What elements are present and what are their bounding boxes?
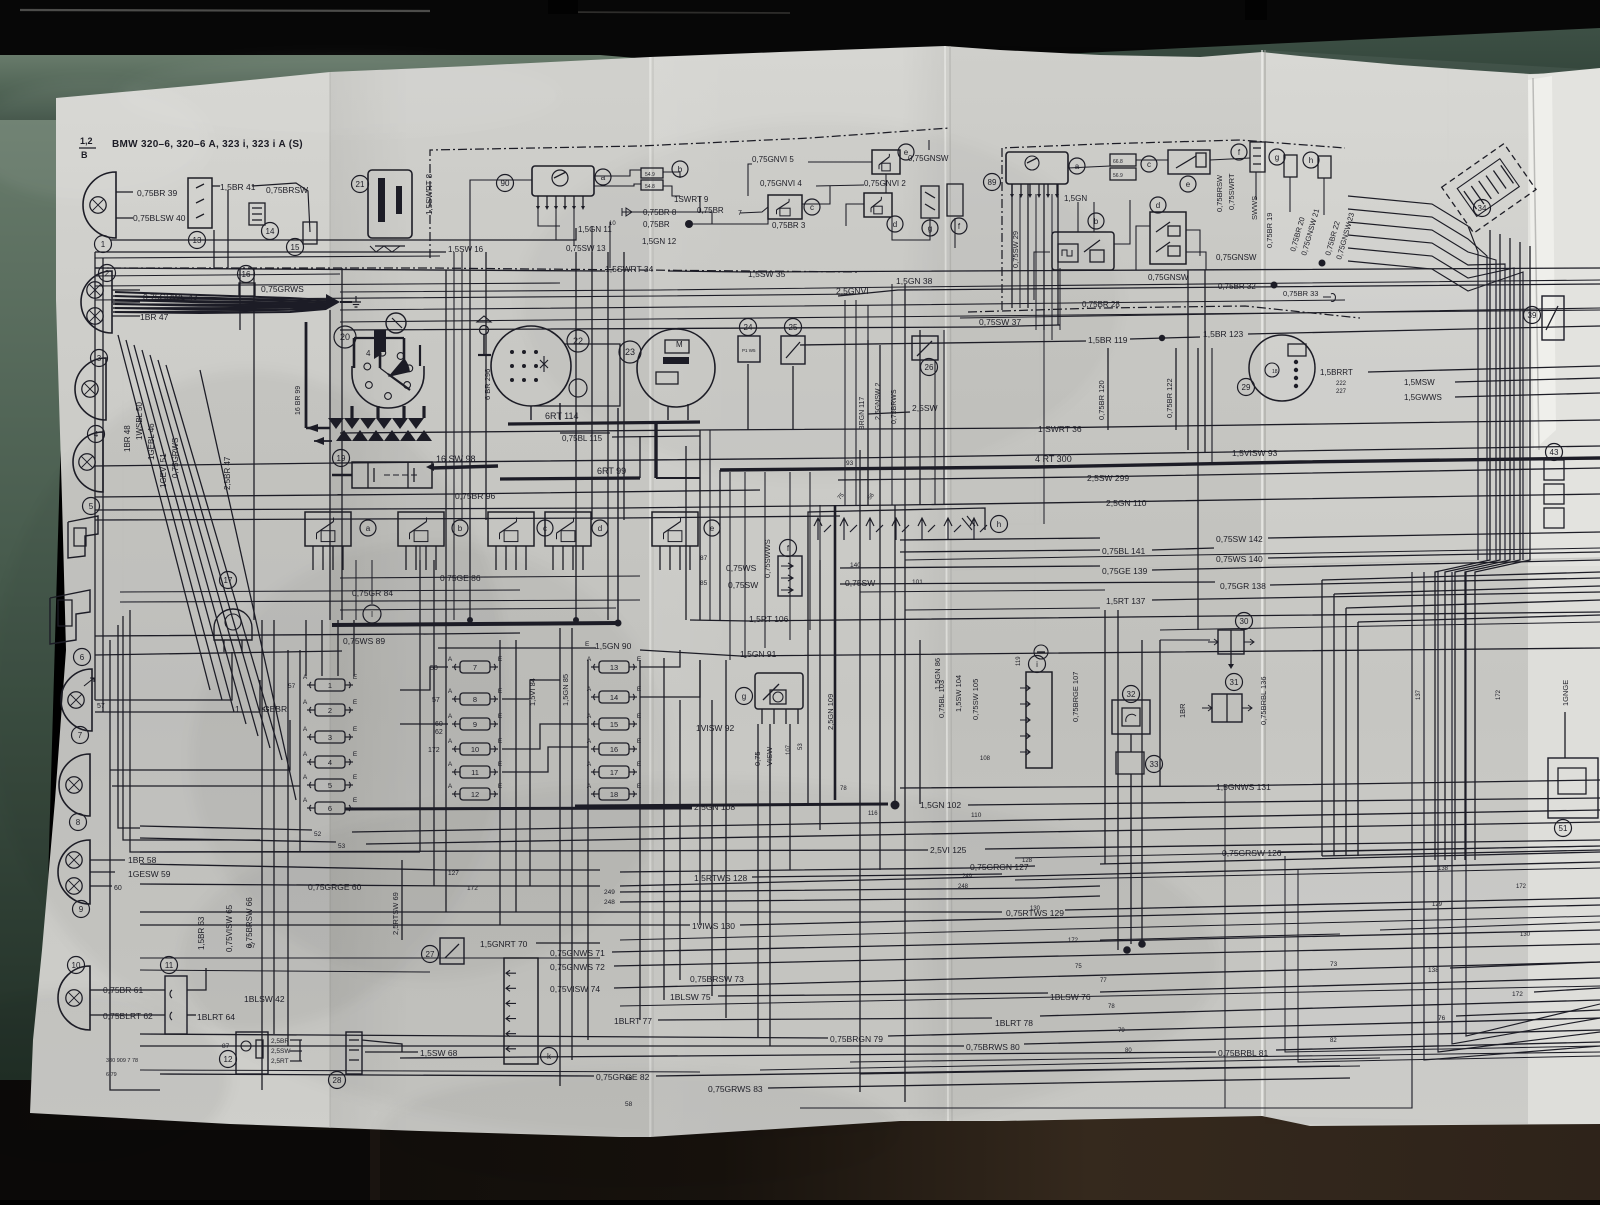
svg-text:2,5BR: 2,5BR (271, 1038, 289, 1045)
svg-text:0,75GR 138: 0,75GR 138 (1220, 581, 1266, 591)
svg-text:c: c (1147, 160, 1151, 169)
svg-text:BMW 320–6, 320–6 A, 323 i, 323: BMW 320–6, 320–6 A, 323 i, 323 i A (S) (112, 139, 303, 150)
svg-text:E: E (353, 751, 358, 758)
svg-text:BRGN 117: BRGN 117 (859, 397, 866, 430)
svg-text:0,75BL 103: 0,75BL 103 (937, 680, 946, 718)
svg-text:227: 227 (1336, 389, 1347, 395)
svg-text:9: 9 (473, 720, 477, 729)
svg-text:1,5GN: 1,5GN (1064, 194, 1087, 203)
svg-text:107: 107 (786, 744, 792, 755)
svg-text:0,75BR: 0,75BR (643, 220, 670, 229)
svg-text:58: 58 (625, 1101, 633, 1108)
svg-text:21: 21 (356, 180, 365, 189)
svg-text:0,75BRSW: 0,75BRSW (1215, 174, 1224, 212)
svg-text:57: 57 (97, 703, 105, 710)
svg-text:4: 4 (366, 349, 371, 358)
svg-text:2,5GNSW 2: 2,5GNSW 2 (875, 383, 882, 420)
svg-text:A: A (448, 761, 453, 768)
svg-text:A: A (303, 699, 308, 706)
svg-text:137: 137 (1416, 689, 1422, 700)
svg-text:0,75GRWS 83: 0,75GRWS 83 (708, 1084, 763, 1094)
svg-text:30: 30 (1240, 617, 1249, 626)
svg-text:2,5SW: 2,5SW (271, 1048, 291, 1055)
svg-text:0,75VISW 74: 0,75VISW 74 (550, 984, 600, 994)
svg-text:h: h (997, 520, 1001, 529)
svg-text:A: A (448, 656, 453, 663)
svg-text:0,75SW: 0,75SW (728, 580, 758, 590)
svg-text:g: g (742, 692, 746, 701)
svg-text:M: M (676, 340, 683, 349)
svg-text:2: 2 (105, 269, 110, 278)
svg-text:0,75BR 33: 0,75BR 33 (1283, 289, 1318, 298)
svg-text:0,75BRSW: 0,75BRSW (266, 185, 308, 195)
svg-text:6.79: 6.79 (106, 1072, 117, 1078)
svg-text:3: 3 (328, 733, 332, 742)
svg-text:1,5GN 102: 1,5GN 102 (920, 800, 961, 810)
svg-text:18: 18 (1272, 369, 1278, 375)
svg-text:101: 101 (912, 579, 923, 586)
svg-text:7: 7 (78, 731, 83, 740)
svg-text:6RT 114: 6RT 114 (545, 411, 579, 421)
svg-text:10: 10 (471, 745, 479, 754)
svg-text:0,75GRGE 60: 0,75GRGE 60 (308, 882, 362, 892)
svg-text:2,5VI 125: 2,5VI 125 (930, 845, 967, 855)
svg-text:5: 5 (328, 781, 332, 790)
svg-text:0,75WS: 0,75WS (726, 563, 757, 573)
svg-text:15: 15 (610, 720, 618, 729)
svg-text:93: 93 (846, 460, 854, 467)
svg-text:E: E (353, 797, 358, 804)
svg-text:25: 25 (789, 323, 798, 332)
svg-text:23: 23 (625, 347, 635, 357)
svg-text:1: 1 (328, 681, 332, 690)
svg-text:1BLSW 75: 1BLSW 75 (670, 992, 711, 1002)
svg-text:1,5BR 41: 1,5BR 41 (220, 182, 256, 192)
svg-text:1,5RT 137: 1,5RT 137 (1106, 596, 1146, 606)
svg-text:1,5BRRT: 1,5BRRT (1320, 368, 1353, 377)
svg-text:17: 17 (610, 768, 618, 777)
svg-text:1,2: 1,2 (80, 136, 93, 146)
svg-text:10: 10 (72, 961, 81, 970)
svg-text:1,5BR 123: 1,5BR 123 (1203, 329, 1243, 339)
svg-text:d: d (1156, 201, 1160, 210)
svg-text:62: 62 (435, 729, 443, 736)
svg-text:172: 172 (1516, 884, 1527, 890)
svg-text:h: h (1309, 156, 1313, 165)
svg-text:5: 5 (89, 502, 94, 511)
svg-text:i: i (1036, 660, 1038, 669)
svg-text:85: 85 (700, 580, 708, 587)
svg-text:0,75BRSW 73: 0,75BRSW 73 (690, 974, 744, 984)
svg-text:172: 172 (1496, 689, 1502, 700)
svg-text:1,5GN 90: 1,5GN 90 (595, 641, 632, 651)
svg-text:0,75BR: 0,75BR (697, 206, 724, 215)
svg-text:0,75BL 141: 0,75BL 141 (1102, 546, 1145, 556)
svg-text:53: 53 (798, 743, 804, 750)
svg-text:56.9: 56.9 (1113, 173, 1123, 179)
svg-text:d: d (598, 524, 602, 533)
svg-text:4: 4 (328, 758, 332, 767)
svg-text:0,75SW 13: 0,75SW 13 (566, 244, 606, 253)
svg-text:0,75SWRT: 0,75SWRT (1227, 173, 1236, 210)
svg-text:1BLRT 64: 1BLRT 64 (197, 1012, 235, 1022)
svg-text:0,75WS 89: 0,75WS 89 (343, 636, 385, 646)
svg-text:0,75BRBL 136: 0,75BRBL 136 (1259, 676, 1268, 725)
svg-text:A: A (303, 674, 308, 681)
svg-text:2,5BR 47: 2,5BR 47 (223, 456, 232, 490)
svg-text:E: E (637, 713, 642, 720)
svg-text:2,5RTSW 69: 2,5RTSW 69 (391, 892, 400, 935)
svg-text:e: e (1186, 180, 1191, 189)
svg-text:0,75GNVI 4: 0,75GNVI 4 (760, 179, 802, 188)
svg-text:d: d (893, 220, 897, 229)
svg-text:53: 53 (338, 843, 346, 850)
svg-text:87: 87 (700, 555, 708, 562)
svg-text:0,75GNSW: 0,75GNSW (908, 154, 949, 163)
svg-text:248: 248 (604, 899, 615, 906)
svg-text:0,75GNVI 5: 0,75GNVI 5 (752, 155, 794, 164)
svg-text:P1 W5: P1 W5 (742, 348, 756, 353)
svg-text:1,5GN 12: 1,5GN 12 (642, 237, 677, 246)
svg-text:1,5MSW: 1,5MSW (1404, 378, 1435, 387)
svg-text:E: E (353, 774, 358, 781)
svg-text:0,75BR 28: 0,75BR 28 (1082, 300, 1120, 309)
svg-text:55: 55 (262, 707, 270, 714)
svg-text:14: 14 (266, 227, 275, 236)
svg-text:0,75WS 140: 0,75WS 140 (1216, 554, 1263, 564)
svg-text:0,75SW 142: 0,75SW 142 (1216, 534, 1263, 544)
svg-text:52: 52 (314, 831, 322, 838)
svg-text:b: b (458, 524, 463, 533)
svg-text:34: 34 (1478, 204, 1487, 213)
svg-text:249: 249 (604, 889, 615, 896)
svg-text:1,5GN 38: 1,5GN 38 (896, 276, 933, 286)
svg-text:89: 89 (988, 178, 997, 187)
svg-text:0,75BRSW 66: 0,75BRSW 66 (245, 897, 254, 948)
svg-text:A: A (303, 774, 308, 781)
svg-text:1,5SW 104: 1,5SW 104 (954, 675, 963, 712)
svg-text:A: A (303, 797, 308, 804)
svg-text:4 RT 300: 4 RT 300 (1035, 454, 1072, 464)
svg-text:87: 87 (222, 1043, 230, 1050)
svg-text:1,5GWWS: 1,5GWWS (1404, 393, 1442, 402)
svg-text:19: 19 (337, 454, 346, 463)
svg-text:77: 77 (1100, 978, 1107, 984)
svg-text:43: 43 (1550, 448, 1559, 457)
svg-text:1BLSW 42: 1BLSW 42 (244, 994, 285, 1004)
svg-text:26: 26 (925, 363, 934, 372)
svg-text:7: 7 (738, 210, 742, 217)
svg-text:0,75GNSW: 0,75GNSW (1148, 273, 1189, 282)
svg-text:l: l (371, 610, 373, 619)
svg-text:6 BR 296: 6 BR 296 (483, 369, 492, 400)
svg-text:51: 51 (1559, 824, 1568, 833)
svg-text:1VIWS 130: 1VIWS 130 (692, 921, 735, 931)
svg-text:110: 110 (971, 812, 982, 819)
svg-text:6: 6 (80, 653, 85, 662)
svg-text:172: 172 (1512, 991, 1523, 998)
svg-text:0,75BR 122: 0,75BR 122 (1165, 378, 1174, 418)
svg-text:6: 6 (328, 804, 332, 813)
svg-text:18: 18 (610, 790, 618, 799)
svg-text:1,5GN 85: 1,5GN 85 (561, 674, 570, 706)
svg-text:0,75SW 105: 0,75SW 105 (971, 679, 980, 720)
svg-text:1,5SW 68: 1,5SW 68 (420, 1048, 458, 1058)
svg-text:22: 22 (573, 336, 583, 346)
svg-text:1,5RTWS 128: 1,5RTWS 128 (694, 873, 748, 883)
svg-text:7: 7 (473, 663, 477, 672)
svg-text:1BR 48: 1BR 48 (123, 425, 132, 452)
svg-text:79: 79 (1118, 1028, 1125, 1034)
svg-text:E: E (637, 686, 642, 693)
svg-text:222: 222 (1336, 381, 1347, 387)
svg-text:2,5RT: 2,5RT (271, 1058, 289, 1065)
svg-text:15: 15 (291, 243, 300, 252)
svg-text:76: 76 (1438, 1015, 1446, 1022)
svg-text:0,75GE 139: 0,75GE 139 (1102, 566, 1148, 576)
svg-text:0,75BLSW 40: 0,75BLSW 40 (133, 213, 186, 223)
svg-text:68: 68 (625, 1075, 633, 1082)
svg-text:6RT 99: 6RT 99 (597, 466, 626, 476)
svg-text:E: E (637, 738, 642, 745)
svg-text:2: 2 (328, 706, 332, 715)
svg-text:8: 8 (76, 818, 81, 827)
svg-text:g: g (1275, 153, 1279, 162)
svg-text:0,75BR 96: 0,75BR 96 (455, 491, 495, 501)
svg-text:E: E (637, 783, 642, 790)
svg-text:a: a (366, 524, 371, 533)
svg-text:128: 128 (1022, 858, 1033, 864)
svg-text:1BLRT 78: 1BLRT 78 (995, 1018, 1033, 1028)
svg-text:1GNGE: 1GNGE (1561, 680, 1570, 706)
svg-text:0,75BR 120: 0,75BR 120 (1097, 380, 1106, 420)
svg-text:3: 3 (97, 354, 102, 363)
svg-text:SWWS: SWWS (1250, 196, 1259, 220)
svg-text:127: 127 (448, 870, 459, 877)
svg-text:0,75GNWS 71: 0,75GNWS 71 (550, 948, 605, 958)
svg-text:11: 11 (165, 961, 174, 970)
svg-text:172: 172 (1068, 938, 1079, 944)
svg-text:1,5SW 35: 1,5SW 35 (748, 269, 786, 279)
svg-text:9: 9 (79, 905, 84, 914)
svg-text:a: a (601, 173, 606, 182)
svg-text:0,75BRWS 80: 0,75BRWS 80 (966, 1042, 1020, 1052)
svg-text:138: 138 (1438, 866, 1449, 872)
svg-text:1GEBL 46: 1GEBL 46 (147, 423, 156, 460)
svg-text:39: 39 (1528, 311, 1537, 320)
svg-text:1,5GN 11: 1,5GN 11 (578, 225, 612, 234)
svg-text:129: 129 (1432, 902, 1443, 908)
svg-text:0,75GNVI 2: 0,75GNVI 2 (864, 179, 906, 188)
svg-text:1,5RT 106: 1,5RT 106 (749, 614, 789, 624)
svg-text:0,75BR 39: 0,75BR 39 (137, 188, 177, 198)
svg-text:2,5GN 109: 2,5GN 109 (826, 694, 835, 730)
svg-text:E: E (585, 641, 590, 648)
svg-text:1,5SWRT 8: 1,5SWRT 8 (425, 173, 434, 215)
svg-text:E: E (637, 656, 642, 663)
svg-text:12: 12 (471, 790, 479, 799)
svg-text:1,5VISW 93: 1,5VISW 93 (1232, 448, 1278, 458)
svg-text:8: 8 (473, 695, 477, 704)
svg-text:1 SWRT 36: 1 SWRT 36 (1038, 424, 1082, 434)
svg-text:17: 17 (224, 576, 233, 585)
svg-text:1,5GNWS 131: 1,5GNWS 131 (1216, 782, 1271, 792)
svg-text:1GESW 59: 1GESW 59 (128, 869, 171, 879)
svg-text:0,75GRWS: 0,75GRWS (261, 284, 304, 294)
svg-text:78: 78 (1108, 1004, 1115, 1010)
svg-text:A: A (303, 751, 308, 758)
svg-text:29: 29 (1242, 383, 1251, 392)
svg-text:16 BR 99: 16 BR 99 (295, 386, 302, 415)
svg-text:248: 248 (958, 884, 969, 890)
svg-text:0,75GRGE 82: 0,75GRGE 82 (596, 1072, 650, 1082)
svg-text:14: 14 (610, 693, 618, 702)
svg-text:B: B (81, 150, 88, 160)
svg-text:57: 57 (288, 683, 296, 690)
svg-text:1,5SWRT 34: 1,5SWRT 34 (605, 264, 654, 274)
svg-text:80: 80 (1125, 1048, 1132, 1054)
svg-text:2,5SW 299: 2,5SW 299 (1087, 473, 1129, 483)
svg-text:1: 1 (101, 240, 106, 249)
svg-text:130: 130 (1520, 932, 1531, 938)
svg-text:0,75SWWS: 0,75SWWS (763, 539, 772, 578)
svg-text:1BLRT 77: 1BLRT 77 (614, 1016, 652, 1026)
svg-text:a: a (1075, 162, 1080, 171)
svg-text:66.8: 66.8 (1113, 159, 1123, 165)
svg-text:0,75GR 84: 0,75GR 84 (352, 588, 393, 598)
svg-text:119: 119 (1016, 656, 1022, 666)
svg-text:54.8: 54.8 (645, 184, 655, 190)
svg-text:0,75BR 19: 0,75BR 19 (1265, 213, 1274, 248)
svg-text:A: A (303, 726, 308, 733)
svg-text:16: 16 (610, 745, 618, 754)
svg-text:1,5GNRT 70: 1,5GNRT 70 (480, 939, 528, 949)
svg-text:31: 31 (1230, 678, 1239, 687)
svg-text:75: 75 (1075, 964, 1082, 970)
svg-text:0,75BL 115: 0,75BL 115 (562, 434, 603, 443)
svg-text:1,5BR 63: 1,5BR 63 (197, 916, 206, 950)
svg-text:E: E (353, 699, 358, 706)
svg-text:0,75BRGN 79: 0,75BRGN 79 (830, 1034, 883, 1044)
svg-text:108: 108 (980, 756, 991, 762)
svg-text:1BR: 1BR (1178, 703, 1187, 718)
svg-text:1,5SW 16: 1,5SW 16 (448, 245, 484, 254)
svg-text:116: 116 (868, 811, 878, 817)
svg-text:1VISW 92: 1VISW 92 (696, 723, 735, 733)
svg-text:1,5BR 119: 1,5BR 119 (1088, 335, 1128, 345)
svg-text:0,75GNSW: 0,75GNSW (1216, 253, 1257, 262)
svg-text:249: 249 (962, 874, 973, 880)
svg-text:33: 33 (1150, 760, 1159, 769)
svg-text:57: 57 (432, 697, 440, 704)
svg-text:54.9: 54.9 (645, 172, 655, 178)
svg-text:A: A (448, 783, 453, 790)
svg-text:2,5SW: 2,5SW (912, 403, 938, 413)
svg-text:60: 60 (114, 885, 122, 892)
svg-text:0,75BR 3: 0,75BR 3 (772, 221, 806, 230)
svg-text:13: 13 (610, 663, 618, 672)
svg-text:11: 11 (471, 768, 479, 777)
svg-text:A: A (448, 738, 453, 745)
svg-text:A: A (448, 688, 453, 695)
svg-text:380 909 7 78: 380 909 7 78 (106, 1058, 138, 1064)
svg-text:0,75BRGE 107: 0,75BRGE 107 (1071, 672, 1080, 722)
svg-text:78: 78 (840, 786, 847, 792)
svg-text:A: A (448, 713, 453, 720)
svg-text:73: 73 (1330, 961, 1338, 968)
svg-text:32: 32 (1127, 690, 1136, 699)
svg-text:E: E (353, 726, 358, 733)
svg-text:82: 82 (1330, 1038, 1337, 1044)
svg-text:24: 24 (744, 323, 753, 332)
svg-text:28: 28 (333, 1076, 342, 1085)
svg-text:2,5GN 110: 2,5GN 110 (1106, 498, 1147, 508)
svg-text:0,75GNWS 72: 0,75GNWS 72 (550, 962, 605, 972)
svg-text:67: 67 (248, 943, 256, 950)
svg-text:E: E (637, 761, 642, 768)
svg-text:12: 12 (224, 1055, 233, 1064)
svg-text:130: 130 (1030, 906, 1041, 912)
